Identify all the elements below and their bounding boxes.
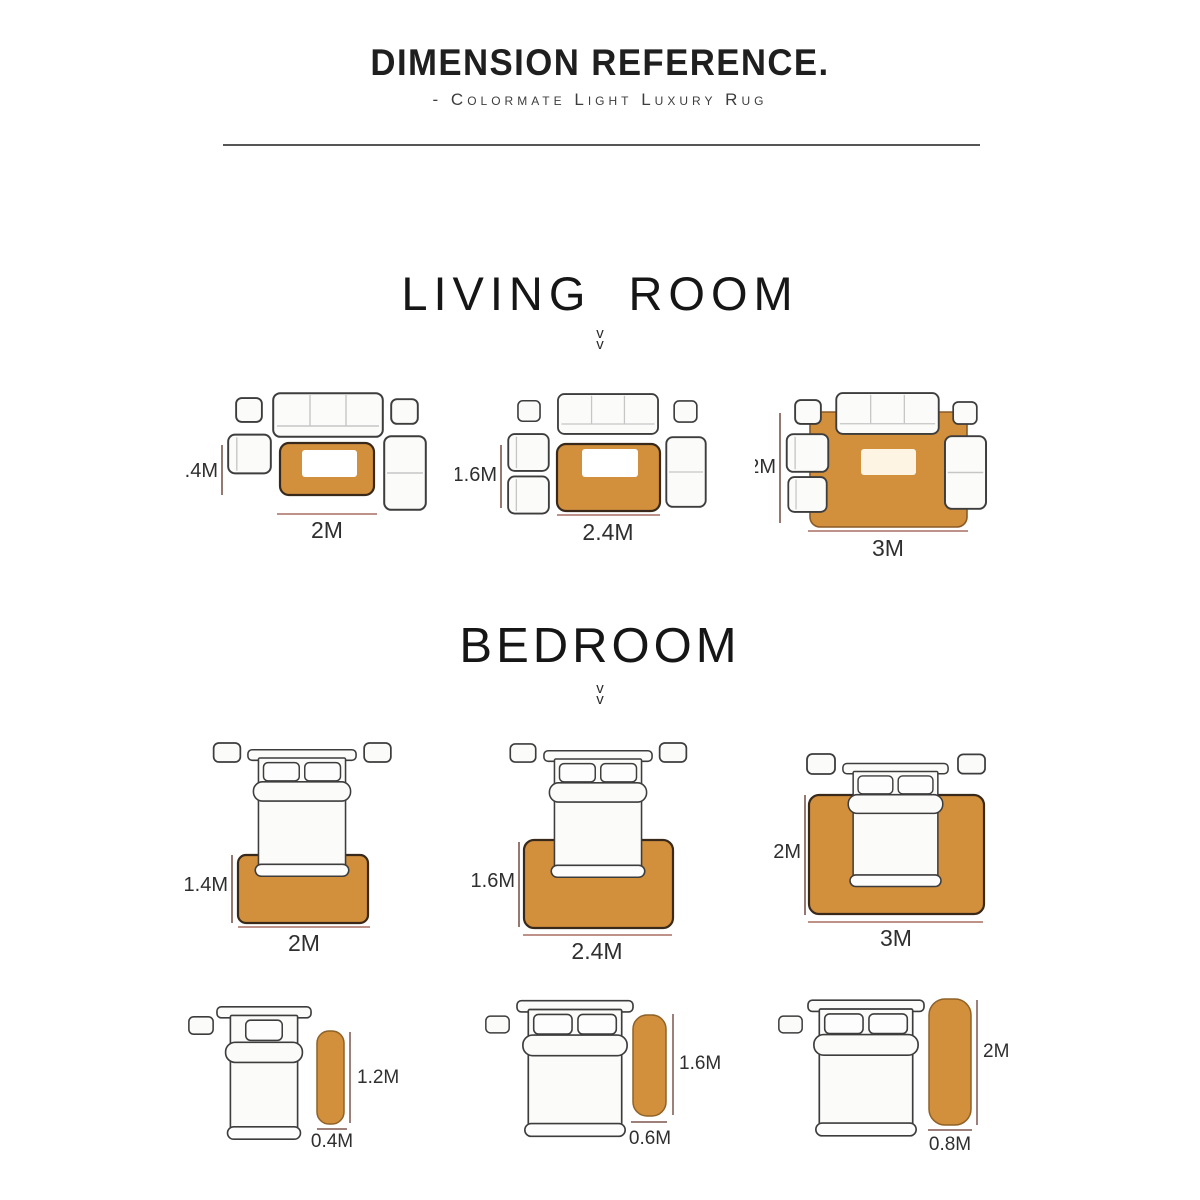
height-label: 1.6M — [679, 1053, 720, 1074]
bedroom-layout-1: 1.4M 2M — [180, 735, 430, 960]
bed-icon — [217, 1007, 311, 1139]
width-label: 3M — [872, 535, 904, 561]
runner-rug — [633, 1015, 666, 1116]
sofa-icon — [558, 394, 658, 434]
coffee-table-icon — [582, 449, 638, 477]
bed-icon — [808, 1000, 924, 1136]
armchair-icon — [788, 477, 826, 512]
bed-icon — [248, 750, 356, 877]
nightstand-icon — [807, 754, 835, 774]
loveseat-icon — [384, 436, 426, 510]
height-label: 2M — [983, 1041, 1009, 1062]
bedroom-layout-2: 1.6M 2.4M — [470, 735, 720, 970]
sofa-icon — [273, 393, 383, 437]
side-table-icon — [518, 401, 540, 421]
side-table-icon — [236, 398, 262, 422]
loveseat-icon — [945, 436, 986, 509]
armchair-icon — [787, 434, 829, 472]
page-subtitle: - Colormate Light Luxury Rug — [0, 90, 1200, 110]
living-room-layout-1: .4M 2M — [183, 385, 433, 555]
armchair-icon — [508, 434, 548, 471]
header-divider — [223, 144, 980, 146]
runner-rug — [929, 999, 971, 1125]
nightstand-icon — [779, 1016, 802, 1033]
armchair-icon — [508, 476, 549, 513]
bedside-runner-layout-3: 2M 0.8M — [770, 995, 1020, 1167]
width-label: 2M — [311, 517, 343, 543]
chevron-down-icon: v v — [0, 683, 1200, 705]
nightstand-icon — [486, 1016, 509, 1033]
width-label: 0.6M — [629, 1128, 671, 1149]
bedroom-layout-3: 2M 3M — [765, 735, 1015, 965]
page-title: DIMENSION REFERENCE. — [36, 42, 1164, 84]
width-label: 0.4M — [311, 1131, 353, 1152]
width-label: 3M — [880, 925, 912, 951]
bed-icon — [544, 751, 652, 878]
nightstand-icon — [958, 754, 985, 773]
nightstand-icon — [214, 743, 241, 762]
chevron-down-icon: v v — [0, 328, 1200, 350]
nightstand-icon — [364, 743, 391, 762]
nightstand-icon — [510, 744, 535, 762]
armchair-icon — [228, 435, 271, 474]
bedside-runner-layout-2: 1.6M 0.6M — [480, 995, 720, 1160]
height-label: .4M — [185, 460, 218, 482]
side-table-icon — [674, 401, 697, 422]
nightstand-icon — [660, 743, 687, 762]
side-table-icon — [953, 402, 977, 424]
height-label: 1.4M — [184, 874, 228, 896]
runner-rug — [317, 1031, 344, 1124]
living-room-layout-3: 2M 3M — [755, 385, 1030, 575]
width-label: 0.8M — [929, 1134, 971, 1155]
chevron-down-icon: v — [0, 339, 1200, 350]
height-label: 1.2M — [357, 1067, 399, 1088]
bedroom-heading: BEDROOM — [0, 618, 1200, 674]
height-label: 1.6M — [455, 464, 497, 486]
height-label: 1.6M — [471, 870, 515, 892]
height-label: 2M — [773, 841, 801, 863]
width-label: 2.4M — [582, 519, 633, 545]
bed-icon — [517, 1001, 633, 1137]
height-label: 2M — [755, 456, 776, 478]
width-label: 2.4M — [571, 938, 622, 964]
side-table-icon — [795, 400, 821, 424]
bedside-runner-layout-1: 1.2M 0.4M — [185, 995, 400, 1160]
side-table-icon — [391, 399, 418, 424]
loveseat-icon — [666, 437, 705, 507]
chevron-down-icon: v — [0, 694, 1200, 705]
nightstand-icon — [189, 1017, 213, 1034]
bed-icon — [843, 763, 948, 886]
dimension-reference-page: DIMENSION REFERENCE. - Colormate Light L… — [0, 0, 1200, 1200]
living-room-layout-2: 1.6M 2.4M — [455, 385, 720, 560]
sofa-icon — [836, 393, 938, 434]
coffee-table-icon — [861, 449, 916, 475]
width-label: 2M — [288, 930, 320, 956]
coffee-table-icon — [302, 450, 357, 477]
living-room-heading: LIVING ROOM — [0, 266, 1200, 321]
